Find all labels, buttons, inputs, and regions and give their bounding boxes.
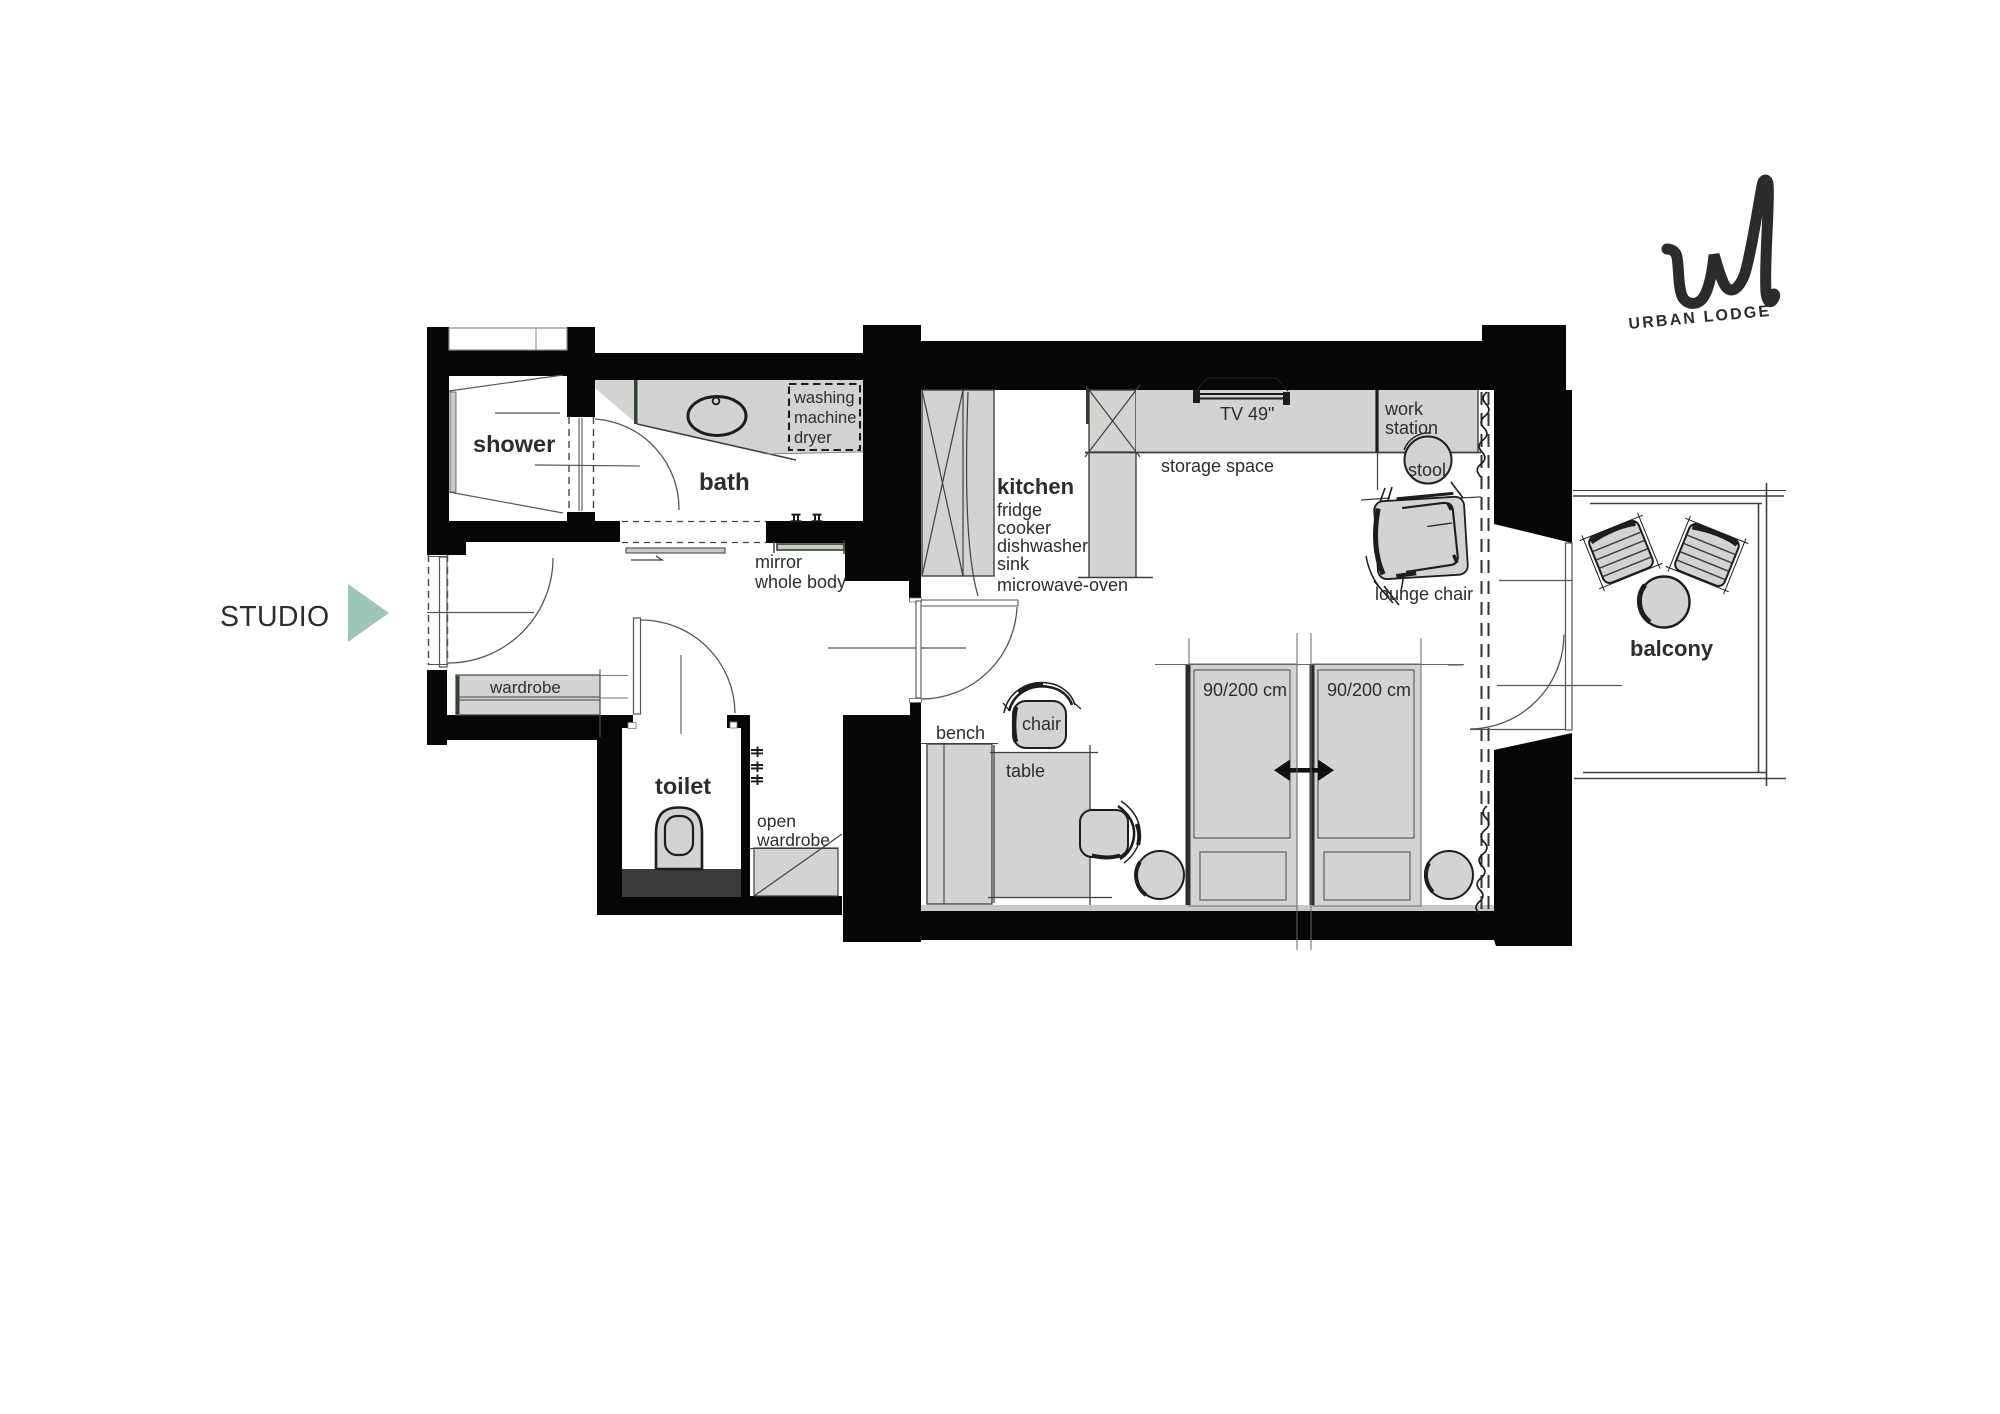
svg-text:wardrobe: wardrobe	[489, 678, 561, 697]
svg-text:dishwasher: dishwasher	[997, 536, 1088, 556]
svg-text:lounge chair: lounge chair	[1375, 584, 1473, 604]
svg-text:balcony: balcony	[1630, 636, 1714, 661]
svg-text:90/200 cm: 90/200 cm	[1203, 680, 1287, 700]
svg-text:open: open	[757, 811, 796, 831]
svg-text:bench: bench	[936, 723, 985, 743]
svg-text:whole body: whole body	[754, 572, 846, 592]
svg-text:fridge: fridge	[997, 500, 1042, 520]
svg-text:machine: machine	[794, 409, 856, 427]
svg-text:storage space: storage space	[1161, 456, 1274, 476]
svg-text:toilet: toilet	[655, 773, 711, 799]
svg-text:kitchen: kitchen	[997, 474, 1074, 499]
svg-text:dryer: dryer	[794, 429, 832, 447]
svg-text:wardrobe: wardrobe	[756, 830, 830, 850]
svg-text:bath: bath	[699, 469, 750, 496]
svg-text:shower: shower	[473, 431, 555, 457]
svg-text:work: work	[1384, 399, 1424, 419]
svg-text:table: table	[1006, 761, 1045, 781]
svg-text:sink: sink	[997, 554, 1030, 574]
svg-text:microwave-oven: microwave-oven	[997, 575, 1128, 595]
svg-text:cooker: cooker	[997, 518, 1051, 538]
svg-text:stool: stool	[1408, 460, 1446, 480]
svg-text:station: station	[1385, 418, 1438, 438]
svg-text:mirror: mirror	[755, 552, 802, 572]
svg-text:90/200 cm: 90/200 cm	[1327, 680, 1411, 700]
svg-text:washing: washing	[793, 389, 855, 407]
svg-text:STUDIO: STUDIO	[220, 601, 329, 633]
svg-text:chair: chair	[1022, 714, 1061, 734]
svg-text:TV 49": TV 49"	[1220, 404, 1274, 424]
